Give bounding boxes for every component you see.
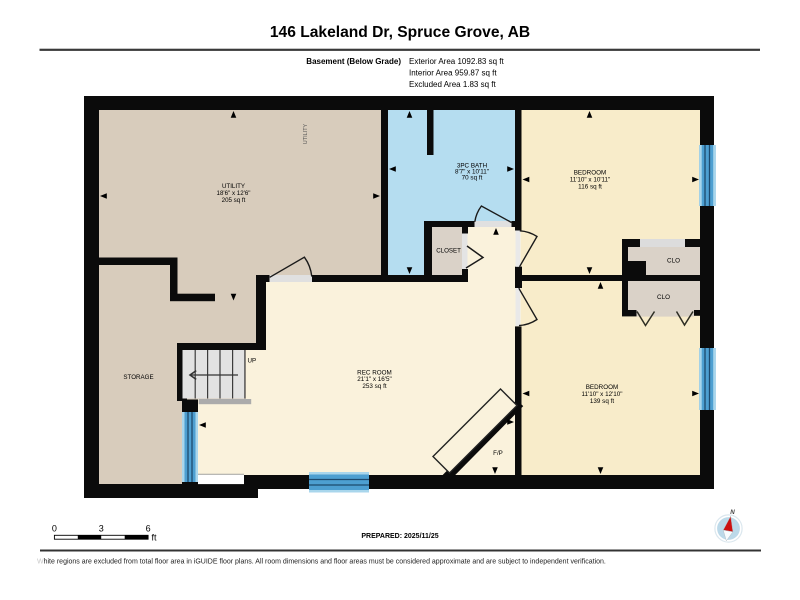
svg-text:Exterior Area 1092.83 sq ft: Exterior Area 1092.83 sq ft [409,57,505,66]
svg-text:ft: ft [152,533,158,543]
svg-text:CLO: CLO [667,258,680,265]
svg-text:Basement (Below Grade): Basement (Below Grade) [306,57,401,66]
svg-text:UTILITY: UTILITY [303,123,309,144]
svg-text:0: 0 [52,524,57,534]
svg-text:UP: UP [248,358,257,365]
svg-text:205 sq ft: 205 sq ft [222,197,246,204]
svg-text:253 sq ft: 253 sq ft [362,383,386,390]
svg-text:6: 6 [146,524,151,534]
svg-text:PREPARED: 2025/11/25: PREPARED: 2025/11/25 [361,533,438,540]
svg-text:White regions are excluded fro: White regions are excluded from total fl… [37,558,606,565]
svg-text:N: N [730,509,735,516]
svg-text:70 sq ft: 70 sq ft [462,175,483,182]
svg-text:Interior Area 959.87 sq ft: Interior Area 959.87 sq ft [409,69,497,78]
svg-text:3: 3 [99,524,104,534]
svg-text:139 sq ft: 139 sq ft [590,398,614,405]
svg-text:CLO: CLO [657,294,670,301]
svg-text:116 sq ft: 116 sq ft [578,183,602,190]
svg-text:F/P: F/P [493,450,503,457]
svg-text:Excluded Area 1.83 sq ft: Excluded Area 1.83 sq ft [409,80,497,89]
svg-text:CLOSET: CLOSET [436,248,461,255]
svg-text:146 Lakeland Dr, Spruce Grove,: 146 Lakeland Dr, Spruce Grove, AB [270,24,530,41]
svg-text:STORAGE: STORAGE [123,374,153,381]
